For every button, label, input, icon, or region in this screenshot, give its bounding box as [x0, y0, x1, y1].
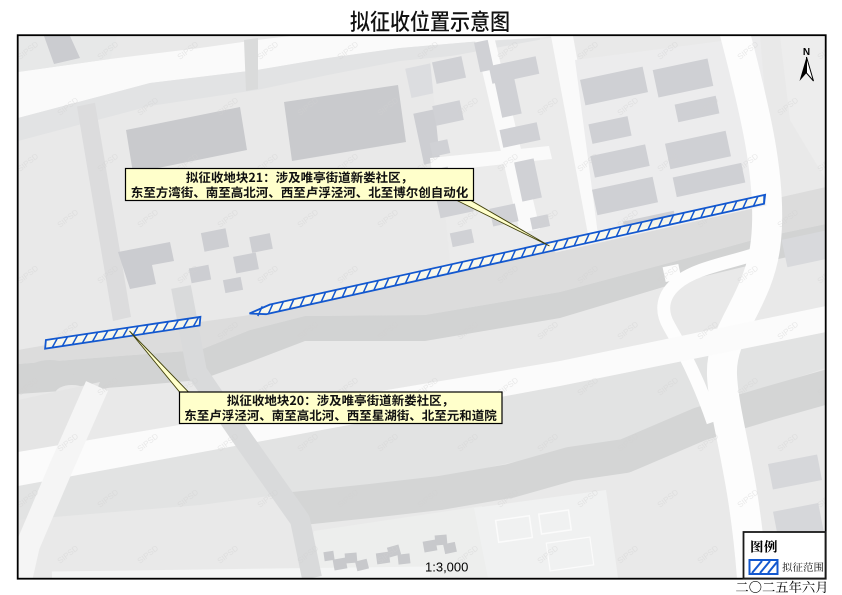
svg-text:1:3,000: 1:3,000 [425, 560, 468, 575]
svg-text:N: N [803, 47, 810, 58]
